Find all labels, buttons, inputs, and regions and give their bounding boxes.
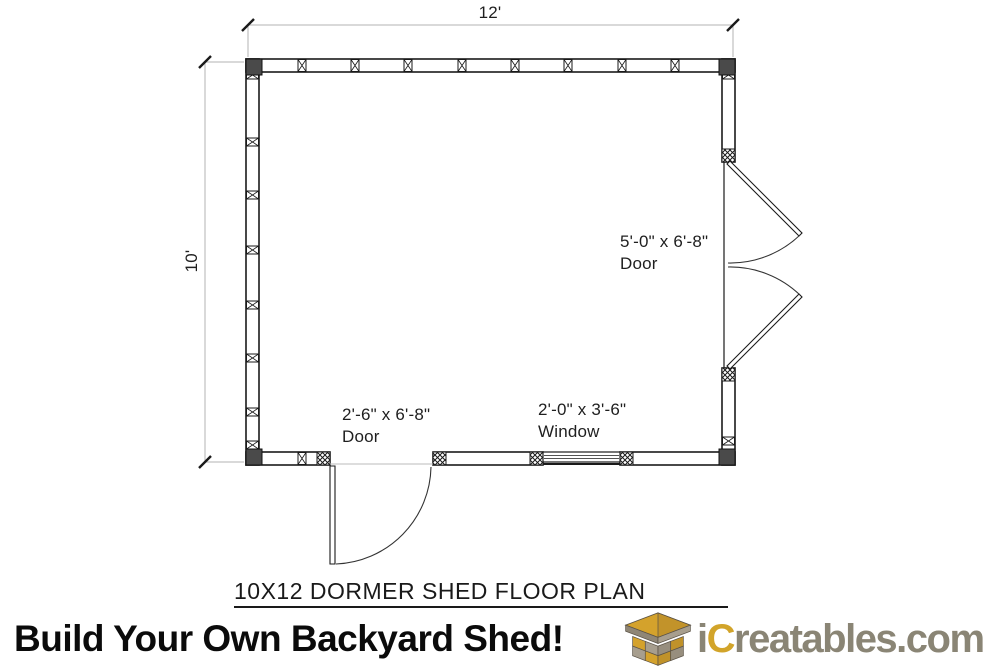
floor-plan-page: 12' 10' 5'-0" x 6'-8" Door 2'-6" x 6'-8"… [0,0,1000,667]
side-door-size: 5'-0" x 6'-8" [620,231,708,253]
plan-title: 10X12 DORMER SHED FLOOR PLAN [234,578,646,605]
front-door-label: 2'-6" x 6'-8" Door [342,404,430,448]
front-door-size: 2'-6" x 6'-8" [342,404,430,426]
side-door-type: Door [620,253,708,275]
window-type: Window [538,421,626,443]
side-double-door-symbol [724,161,802,369]
front-door-type: Door [342,426,430,448]
dimension-width-label: 12' [458,2,522,24]
floor-plan-drawing [0,0,1000,610]
side-door-label: 5'-0" x 6'-8" Door [620,231,708,275]
window-label: 2'-0" x 3'-6" Window [538,399,626,443]
brand-c: C [707,617,734,661]
front-door-symbol [330,464,433,564]
window-size: 2'-0" x 3'-6" [538,399,626,421]
brand-i: i [697,617,707,661]
dimension-depth-label: 10' [181,237,203,285]
shed-logo-icon[interactable] [617,612,699,667]
brand-wordmark[interactable]: iCreatables.com [697,617,984,662]
footer-tagline: Build Your Own Backyard Shed! [14,618,564,660]
brand-rest: reatables.com [734,617,984,661]
title-underline [234,606,728,608]
window-symbol [543,452,620,464]
